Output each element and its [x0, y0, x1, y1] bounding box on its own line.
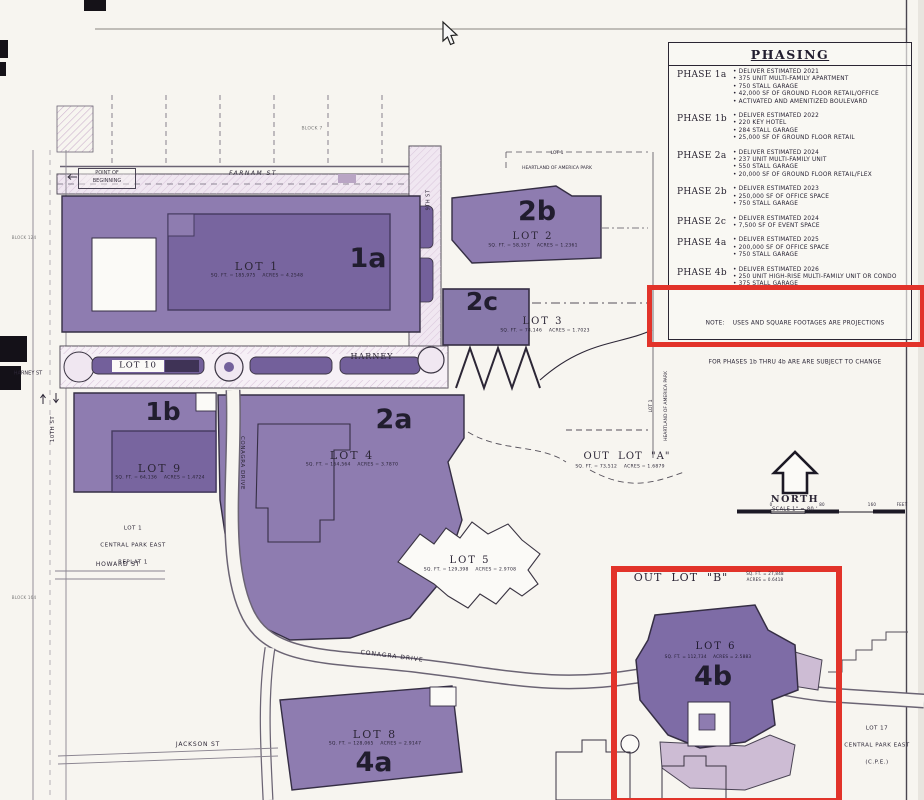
phase-tag-2b: 2b: [518, 198, 556, 226]
phase-item: 250,000 SF OF OFFICE SPACE: [733, 194, 829, 201]
ninth-st-label: 9TH ST: [426, 190, 431, 211]
phase-item: 284 STALL GARAGE: [733, 128, 855, 135]
scale-bar: [737, 510, 905, 514]
phase-item: DELIVER ESTIMATED 2025: [733, 237, 829, 244]
scan-artifacts: [0, 0, 106, 76]
phase-item: 7,500 SF OF EVENT SPACE: [733, 223, 820, 230]
phase-item: 237 UNIT MULTI-FAMILY UNIT: [733, 157, 872, 164]
cpe-replat-line: REPLAT 1: [100, 560, 165, 566]
point-of-beginning-label: POINT OF BEGINNING: [78, 168, 136, 189]
hoap-side-lot-line: LOT 1: [651, 371, 656, 441]
phase-tag-2c: 2c: [466, 289, 498, 315]
phase-item: 200,000 SF OF OFFICE SPACE: [733, 245, 829, 252]
offsite-buildings: [0, 336, 27, 390]
phasing-title: PHASING: [669, 43, 911, 66]
phase-item: 550 STALL GARAGE: [733, 164, 872, 171]
outlot-b-stats-1: SQ. FT. = 27,848: [746, 572, 784, 576]
phasing-rows: PHASE 1aDELIVER ESTIMATED 2021375 UNIT M…: [677, 69, 907, 296]
phase-row-phase-2c: PHASE 2cDELIVER ESTIMATED 20247,500 SF O…: [677, 216, 907, 231]
lot4-parcel: [218, 395, 464, 640]
jackson-st-label: JACKSON ST: [176, 742, 220, 748]
lot2-name: LOT 2: [512, 232, 553, 243]
phase-item: 750 STALL GARAGE: [733, 252, 829, 259]
phase-item: 25,000 SF OF GROUND FLOOR RETAIL: [733, 135, 855, 142]
phase-item: DELIVER ESTIMATED 2026: [733, 267, 897, 274]
phase-item: DELIVER ESTIMATED 2023: [733, 186, 829, 193]
north-label: NORTH: [771, 495, 819, 505]
phase-name: PHASE 1b: [677, 113, 733, 143]
harney-label: HARNEY: [351, 353, 394, 361]
lot1-name: LOT 1: [235, 261, 279, 273]
hoap-side-park-line: HEARTLAND OF AMERICA PARK: [665, 371, 670, 441]
lot3-name: LOT 3: [522, 317, 563, 328]
phase-items: DELIVER ESTIMATED 2021375 UNIT MULTI-FAM…: [733, 69, 879, 106]
phase-name: PHASE 4a: [677, 237, 733, 259]
tenth-st-label: 10TH ST: [51, 416, 57, 443]
phase-item: 750 STALL GARAGE: [733, 201, 829, 208]
hoap-lot-line: LOT 1: [522, 153, 592, 158]
outlot-b-name: OUT LOT "B": [634, 572, 728, 584]
lot9-stats: SQ. FT. = 64,136 ACRES = 1.4724: [115, 477, 204, 482]
lot3-stats: SQ. FT. = 74,146 ACRES = 1.7023: [500, 330, 589, 335]
phase-item: 220 KEY HOTEL: [733, 120, 855, 127]
lot9-name: LOT 9: [138, 463, 182, 475]
lot17-lot-line: LOT 17: [844, 726, 909, 732]
phase-item: 42,000 SF OF GROUND FLOOR RETAIL/OFFICE: [733, 91, 879, 98]
phase-item: 375 UNIT MULTI-FAMILY APARTMENT: [733, 76, 879, 83]
phase-row-phase-1b: PHASE 1bDELIVER ESTIMATED 2022220 KEY HO…: [677, 113, 907, 143]
lot17-abbr-line: (C.P.E.): [844, 760, 909, 766]
cpe-name-line: CENTRAL PARK EAST: [100, 543, 165, 549]
lot5-stats: SQ. FT. = 129,398 ACRES = 2.9708: [424, 569, 516, 574]
phase-tag-1b: 1b: [145, 399, 180, 425]
scale-label: SCALE 1" = 80 ': [772, 507, 818, 512]
phase-item: DELIVER ESTIMATED 2022: [733, 113, 855, 120]
pob-line-1: POINT OF: [79, 169, 135, 177]
phase-row-phase-1a: PHASE 1aDELIVER ESTIMATED 2021375 UNIT M…: [677, 69, 907, 106]
phase-tag-1a: 1a: [349, 245, 386, 273]
note-line-2: FOR PHASES 1b THRU 4b ARE ARE SUBJECT TO…: [706, 360, 885, 366]
phase-row-phase-2a: PHASE 2aDELIVER ESTIMATED 2024237 UNIT M…: [677, 150, 907, 180]
phase-name: PHASE 1a: [677, 69, 733, 106]
phase-row-phase-4a: PHASE 4aDELIVER ESTIMATED 2025200,000 SF…: [677, 237, 907, 259]
hoap-park-line: HEARTLAND OF AMERICA PARK: [522, 167, 592, 172]
farnam-st-label: FARNAM ST: [229, 171, 277, 177]
phase-items: DELIVER ESTIMATED 20247,500 SF OF EVENT …: [733, 216, 820, 231]
north-blocks: [57, 95, 425, 167]
lot5-name: LOT 5: [449, 556, 490, 567]
phase-item: DELIVER ESTIMATED 2024: [733, 216, 820, 223]
mouse-cursor: [443, 22, 457, 45]
highlight-box-phase-4b: [647, 285, 924, 347]
phase-item: 20,000 SF OF GROUND FLOOR RETAIL/FLEX: [733, 172, 872, 179]
phase-items: DELIVER ESTIMATED 2024237 UNIT MULTI-FAM…: [733, 150, 872, 180]
phase-item: ACTIVATED AND AMENITIZED BOULEVARD: [733, 99, 879, 106]
harney-st-west-label: HARNEY ST: [14, 371, 42, 376]
lot1-stats: SQ. FT. = 185,975 ACRES = 4.2548: [211, 275, 303, 280]
lot6-name: LOT 6: [695, 642, 736, 653]
lot17-name-line: CENTRAL PARK EAST: [844, 743, 909, 749]
lot2-stats: SQ. FT. = 58,357 ACRES = 1.2361: [488, 245, 577, 250]
phase-item: 750 STALL GARAGE: [733, 84, 879, 91]
phase-item: DELIVER ESTIMATED 2024: [733, 150, 872, 157]
north-arrow: [774, 452, 816, 493]
lot10-name: LOT 10: [119, 362, 157, 371]
outlot-b-stats-2: ACRES = 0.6418: [747, 578, 784, 582]
pob-line-2: BEGINNING: [79, 177, 135, 185]
phase-items: DELIVER ESTIMATED 2025200,000 SF OF OFFI…: [733, 237, 829, 259]
cpe-lot-line: LOT 1: [100, 526, 165, 532]
phase-tag-4a: 4a: [355, 749, 392, 777]
site-plan-page: PHASING PHASE 1aDELIVER ESTIMATED 202137…: [0, 0, 924, 800]
phase-items: DELIVER ESTIMATED 2022220 KEY HOTEL284 S…: [733, 113, 855, 143]
page-edge: [918, 0, 924, 800]
outlot-a-stats: SQ. FT. = 73,512 ACRES = 1.6879: [575, 466, 664, 471]
block124-label: BLOCK 124: [12, 236, 37, 240]
central-park-east-replat-label: LOT 1 CENTRAL PARK EAST REPLAT 1: [100, 514, 165, 577]
conagra-drive-vert-label: CONAGRA DRIVE: [238, 436, 244, 490]
heartland-park-label-side: LOT 1 HEARTLAND OF AMERICA PARK: [641, 371, 679, 441]
phase-name: PHASE 2b: [677, 186, 733, 208]
lot8-name: LOT 8: [353, 729, 397, 741]
lot6-stats: SQ. FT. = 112,734 ACRES = 2.5883: [665, 655, 752, 659]
scalebar-0: 0: [770, 503, 773, 507]
outlot-a-name: OUT LOT "A": [584, 452, 671, 463]
phase-name: PHASE 2c: [677, 216, 733, 231]
phase-name: PHASE 2a: [677, 150, 733, 180]
heartland-park-label-top: LOT 1 HEARTLAND OF AMERICA PARK: [522, 143, 592, 181]
phase-items: DELIVER ESTIMATED 2023250,000 SF OF OFFI…: [733, 186, 829, 208]
phase-item: 250 UNIT HIGH-RISE MULTI-FAMILY UNIT OR …: [733, 274, 897, 281]
scalebar-feet: FEET: [897, 503, 908, 507]
tenth-street: [33, 150, 66, 800]
scalebar-80: 80: [819, 503, 825, 507]
block7-label: BLOCK 7: [301, 128, 322, 133]
phase-item: DELIVER ESTIMATED 2021: [733, 69, 879, 76]
scalebar-160: 160: [868, 503, 876, 507]
block164-label: BLOCK 164: [12, 596, 37, 600]
phase-tag-4b: 4b: [694, 663, 732, 691]
lot4-name: LOT 4: [330, 450, 374, 462]
lot4-stats: SQ. FT. = 164,564 ACRES = 3.7870: [306, 464, 398, 469]
phase-tag-2a: 2a: [375, 406, 412, 434]
lot17-label: LOT 17 CENTRAL PARK EAST (C.P.E.): [844, 714, 909, 777]
phase-row-phase-2b: PHASE 2bDELIVER ESTIMATED 2023250,000 SF…: [677, 186, 907, 208]
